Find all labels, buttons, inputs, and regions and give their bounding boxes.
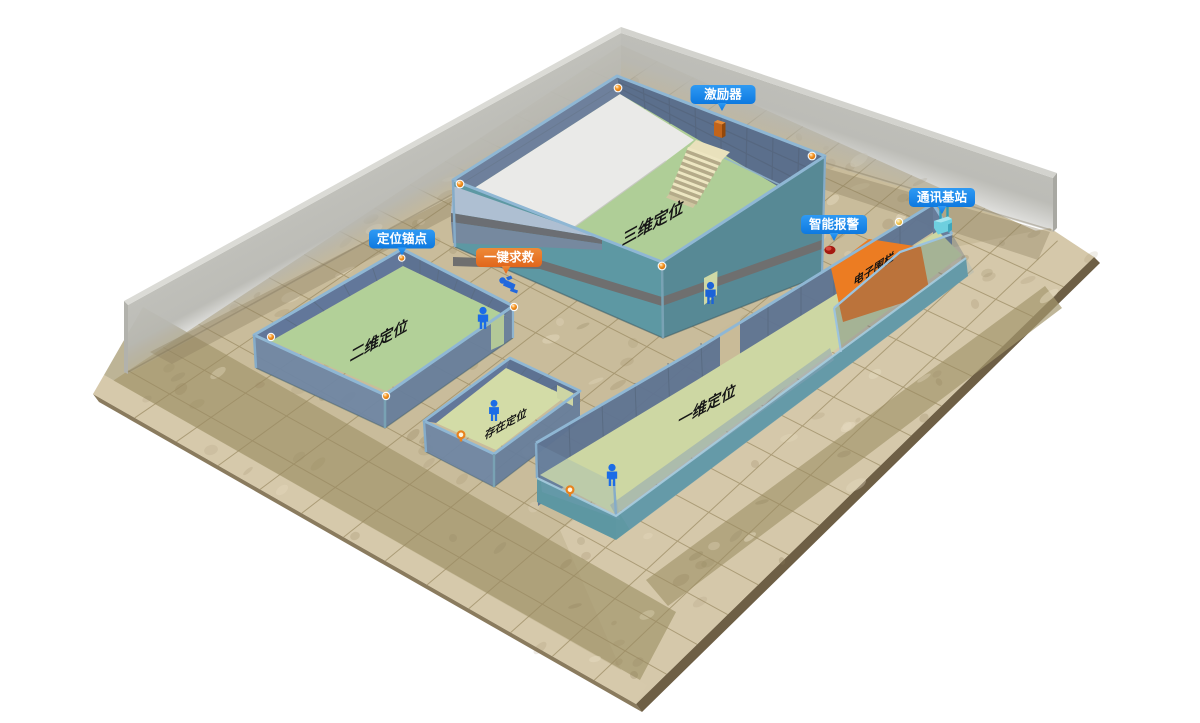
svg-text:智能报警: 智能报警 [808, 217, 860, 232]
svg-text:激励器: 激励器 [704, 87, 742, 102]
svg-text:通讯基站: 通讯基站 [917, 190, 968, 205]
svg-text:一键求救: 一键求救 [484, 250, 535, 265]
svg-text:定位锚点: 定位锚点 [376, 231, 428, 246]
